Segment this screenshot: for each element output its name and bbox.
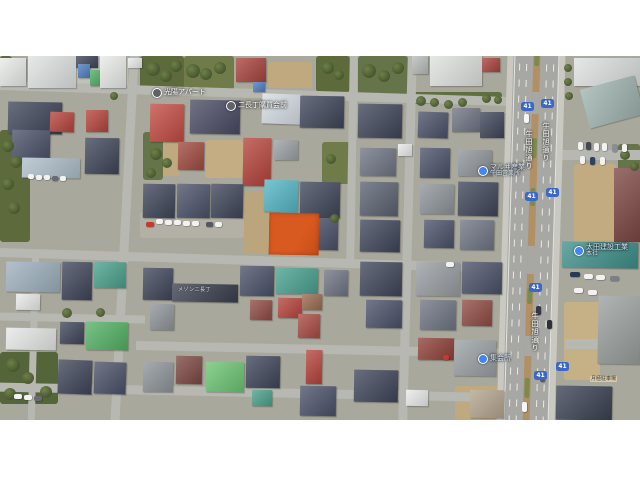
car: [36, 175, 42, 180]
business-icon: [478, 166, 488, 176]
tree: [326, 154, 336, 164]
building: [16, 294, 40, 310]
tree: [362, 64, 376, 78]
business-icon: [574, 246, 584, 256]
car: [44, 175, 50, 180]
tree: [416, 96, 426, 106]
tree: [62, 308, 72, 318]
tree: [444, 100, 453, 109]
car: [183, 221, 190, 226]
building: [150, 304, 174, 330]
building: [6, 328, 56, 351]
map-label-hall-label: 集会所: [478, 354, 511, 364]
tree: [146, 62, 160, 76]
avenue-mveg: [534, 56, 539, 66]
tree: [494, 96, 502, 104]
building: [86, 110, 108, 132]
route-shield: 41: [556, 362, 569, 371]
listing-photo-frame: 41414141414141牛田旭通り牛田旭通り牛田旭通り光陽アパート二長丁購買…: [0, 0, 640, 480]
building: [430, 56, 482, 86]
building: [128, 58, 142, 68]
tree: [334, 70, 344, 80]
highlighted-parcel: [269, 213, 320, 256]
car: [610, 276, 619, 281]
place-icon: [226, 101, 236, 111]
car: [570, 272, 580, 277]
building: [416, 262, 461, 297]
building: [143, 362, 174, 393]
tree: [564, 64, 572, 72]
building: [412, 56, 428, 74]
building: [420, 300, 457, 331]
building: [176, 356, 202, 384]
ground-patch: [322, 142, 350, 184]
tree: [564, 78, 572, 86]
car: [34, 396, 42, 401]
building: [406, 390, 428, 406]
car: [174, 220, 181, 225]
building: [253, 82, 265, 92]
building: [360, 182, 399, 217]
tree: [322, 62, 334, 74]
tree: [146, 168, 156, 178]
building: [263, 179, 298, 212]
tree: [200, 68, 212, 80]
building: [360, 220, 401, 253]
tree: [170, 60, 182, 72]
car: [192, 221, 199, 226]
building: [354, 370, 399, 403]
car: [146, 222, 154, 227]
car: [602, 143, 607, 151]
building: [462, 262, 503, 295]
tree: [330, 214, 339, 223]
tree: [150, 148, 162, 160]
car: [584, 274, 593, 279]
car: [24, 395, 32, 400]
ground-patch: [574, 164, 616, 248]
building: [556, 386, 613, 420]
tree: [458, 98, 467, 107]
tree: [186, 64, 200, 78]
tree: [214, 62, 226, 74]
car: [600, 157, 605, 165]
building: [178, 142, 204, 170]
tree: [378, 70, 390, 82]
car: [165, 220, 172, 225]
tree: [8, 202, 20, 214]
car: [586, 142, 591, 150]
car: [522, 402, 527, 412]
car: [206, 222, 213, 227]
tree: [96, 308, 105, 317]
top-margin: [0, 0, 640, 56]
building: [177, 184, 211, 219]
car: [574, 288, 583, 293]
car: [578, 142, 583, 150]
map-label-text: 太田建設工業本社: [586, 244, 628, 258]
car: [446, 262, 454, 267]
car: [580, 156, 585, 164]
map-label-text: 集会所: [490, 355, 511, 362]
building: [420, 184, 455, 215]
map-label-text: 二長丁購買会前: [238, 102, 287, 109]
building: [246, 356, 281, 389]
route-shield: 41: [541, 99, 554, 108]
building: [62, 262, 93, 301]
tree: [630, 162, 639, 171]
place-icon: [152, 88, 162, 98]
building: [0, 58, 26, 86]
satellite-map-image: 41414141414141牛田旭通り牛田旭通り牛田旭通り光陽アパート二長丁購買…: [0, 56, 640, 420]
car: [590, 157, 595, 165]
route-shield: 41: [546, 188, 559, 197]
tree: [565, 92, 573, 100]
car: [156, 219, 163, 224]
building: [274, 140, 298, 160]
building: [614, 168, 640, 242]
road-name-label: 牛田旭通り: [530, 312, 540, 352]
building: [78, 64, 90, 78]
building: [462, 300, 492, 327]
building: [143, 184, 176, 219]
building: [418, 111, 449, 138]
building: [298, 314, 320, 338]
building: [57, 359, 92, 394]
building: [150, 104, 185, 143]
car: [524, 114, 529, 123]
building: [452, 108, 480, 132]
map-label-apartment-label: 光陽アパート: [152, 88, 206, 98]
tree: [430, 98, 439, 107]
route-shield: 41: [529, 283, 542, 292]
building: [424, 220, 454, 249]
building: [28, 56, 76, 88]
building: [360, 262, 403, 297]
tree: [2, 178, 14, 190]
building: [250, 300, 272, 320]
car: [596, 275, 605, 280]
building: [597, 296, 640, 365]
building: [143, 268, 174, 301]
car: [60, 176, 66, 181]
car: [52, 176, 58, 181]
building: [211, 184, 244, 219]
tree: [6, 358, 20, 372]
building: [300, 96, 345, 129]
tree: [392, 62, 404, 74]
route-shield: 41: [525, 192, 538, 201]
ground-patch: [205, 140, 243, 178]
tree: [162, 158, 172, 168]
car: [588, 290, 597, 295]
map-label-text: 光陽アパート: [164, 89, 206, 96]
car: [622, 144, 627, 152]
car: [547, 320, 552, 329]
road-name-label: 牛田旭通り: [524, 130, 534, 170]
building: [206, 362, 245, 393]
building: [86, 322, 128, 351]
building: [482, 58, 500, 72]
bottom-margin: [0, 420, 640, 480]
building: [470, 390, 504, 419]
car: [594, 143, 599, 151]
building: [50, 112, 75, 133]
building: [60, 322, 84, 344]
building: [302, 294, 322, 310]
building: [85, 138, 120, 175]
building: [358, 104, 403, 139]
building: [420, 148, 451, 179]
avenue-mveg: [524, 378, 530, 398]
building: [93, 361, 126, 394]
building: [324, 270, 348, 296]
ground-patch: [268, 62, 312, 88]
building: [240, 266, 275, 297]
car: [215, 222, 222, 227]
building: [252, 390, 272, 406]
parking-sign-label: 月極駐車場: [590, 376, 617, 382]
car: [14, 394, 22, 399]
building: [6, 262, 61, 293]
tree: [482, 94, 491, 103]
building: [366, 300, 402, 329]
building: [94, 262, 126, 289]
route-shield: 41: [534, 371, 547, 380]
building: [458, 182, 499, 217]
tree: [110, 92, 118, 100]
building: [236, 58, 266, 82]
road-name-label: 牛田旭通り: [541, 122, 551, 162]
tree: [2, 140, 14, 152]
building: [306, 350, 323, 384]
avenue-mgap: [527, 246, 535, 274]
car: [28, 174, 34, 179]
map-label-business-east-label: 太田建設工業本社: [574, 244, 628, 258]
map-label-business-west-label: マルヰ産業牛田営業所: [478, 164, 525, 178]
building: [398, 144, 412, 156]
building: [460, 220, 495, 251]
tree: [160, 70, 172, 82]
car: [443, 355, 449, 360]
map-label-district-label: 二長丁購買会前: [226, 101, 287, 111]
ground-patch: [316, 56, 350, 92]
building: [276, 268, 318, 295]
building: [100, 56, 126, 88]
building: [360, 148, 396, 177]
building: [300, 386, 337, 417]
tree: [22, 372, 34, 384]
tree: [10, 156, 22, 168]
business-icon: [478, 354, 488, 364]
building: [480, 112, 504, 138]
building-roof-label: メゾン二長丁: [178, 286, 211, 293]
route-shield: 41: [521, 102, 534, 111]
car: [612, 144, 617, 152]
map-label-text: マルヰ産業牛田営業所: [490, 164, 525, 178]
